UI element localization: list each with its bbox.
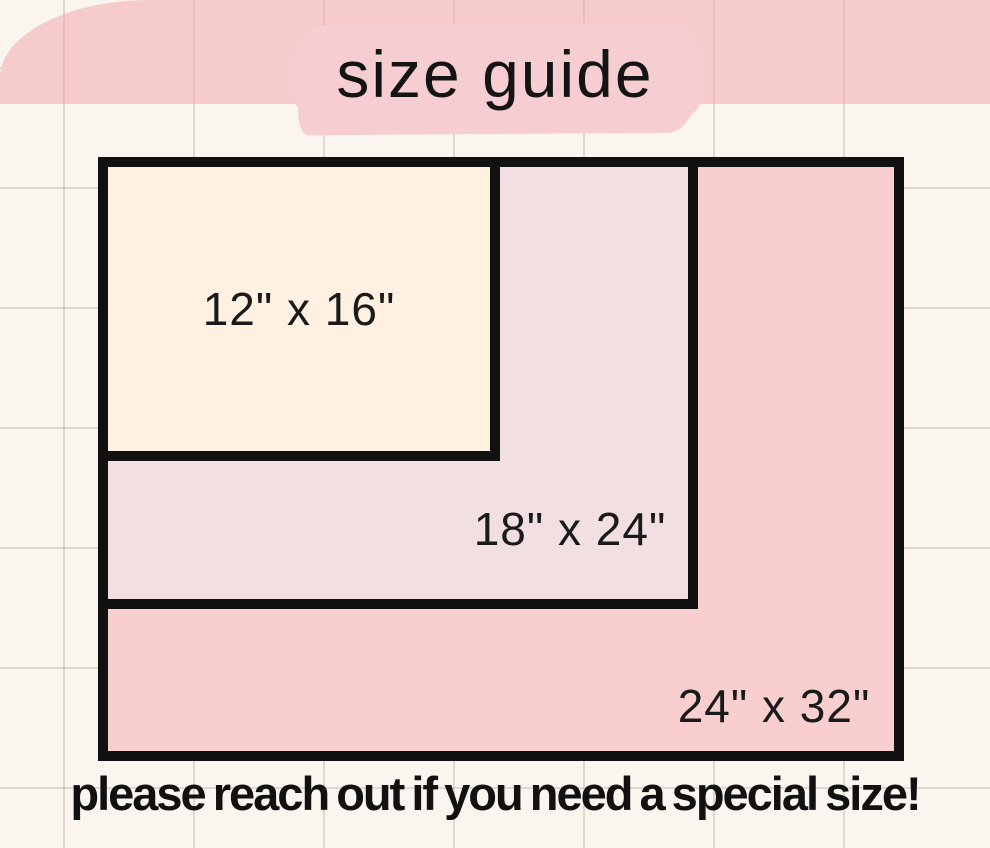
- size-guide-canvas: size guide 12" x 16" 18" x 24" 24" x 32"…: [0, 0, 990, 848]
- page-title: size guide: [0, 36, 990, 112]
- size-label-12x16: 12" x 16": [203, 282, 396, 336]
- footer-note: please reach out if you need a special s…: [0, 766, 990, 821]
- size-box-12x16: 12" x 16": [98, 157, 500, 461]
- size-label-18x24: 18" x 24": [474, 502, 667, 556]
- size-label-24x32: 24" x 32": [678, 679, 871, 733]
